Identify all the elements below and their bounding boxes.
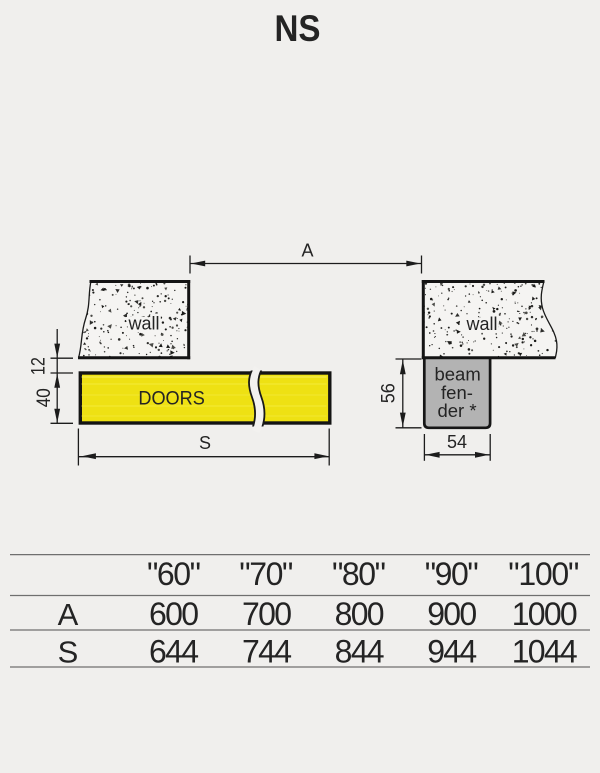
svg-text:12: 12 (28, 357, 50, 375)
svg-text:944: 944 (427, 634, 477, 670)
svg-text:800: 800 (335, 596, 385, 632)
svg-text:644: 644 (149, 634, 199, 670)
svg-text:"90": "90" (425, 556, 479, 592)
svg-text:der *: der * (437, 400, 476, 421)
svg-text:1044: 1044 (512, 634, 578, 670)
svg-text:"70": "70" (239, 556, 293, 592)
svg-text:S: S (199, 433, 211, 453)
svg-text:700: 700 (242, 596, 292, 632)
svg-text:wall: wall (465, 314, 497, 334)
svg-text:600: 600 (149, 596, 199, 632)
svg-text:844: 844 (335, 634, 385, 670)
svg-text:A: A (58, 597, 79, 632)
svg-text:"80": "80" (332, 556, 386, 592)
svg-text:56: 56 (378, 383, 400, 403)
svg-text:"60": "60" (147, 556, 201, 592)
svg-text:40: 40 (33, 388, 55, 407)
svg-text:744: 744 (242, 634, 292, 670)
svg-text:900: 900 (427, 596, 477, 632)
svg-text:"100": "100" (508, 556, 579, 592)
svg-text:54: 54 (447, 432, 467, 452)
svg-text:S: S (58, 635, 79, 670)
svg-text:wall: wall (127, 314, 159, 334)
svg-text:DOORS: DOORS (138, 388, 205, 410)
svg-text:A: A (301, 241, 313, 261)
svg-text:1000: 1000 (512, 596, 578, 632)
svg-text:NS: NS (275, 8, 321, 49)
